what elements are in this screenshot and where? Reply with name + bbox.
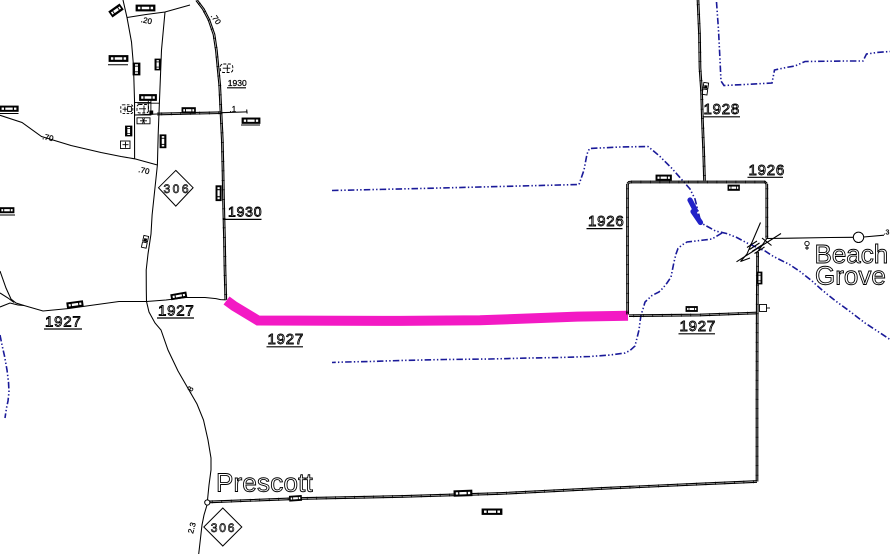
svg-text:Prescott: Prescott	[216, 468, 314, 498]
svg-text:.1: .1	[230, 105, 237, 114]
svg-text:1926: 1926	[749, 162, 786, 179]
svg-text:Grove: Grove	[815, 261, 886, 291]
svg-text:1930: 1930	[228, 78, 247, 88]
svg-text:1927: 1927	[45, 314, 82, 331]
svg-text:1928: 1928	[704, 101, 741, 118]
svg-text:1926: 1926	[588, 213, 625, 230]
svg-text:1927: 1927	[158, 303, 195, 320]
svg-text:306: 306	[164, 182, 192, 196]
svg-text:306: 306	[211, 521, 236, 535]
svg-text:.3: .3	[884, 230, 890, 237]
svg-text:1927: 1927	[680, 318, 717, 335]
svg-text:1930: 1930	[228, 203, 262, 219]
svg-text:1927: 1927	[268, 331, 305, 348]
